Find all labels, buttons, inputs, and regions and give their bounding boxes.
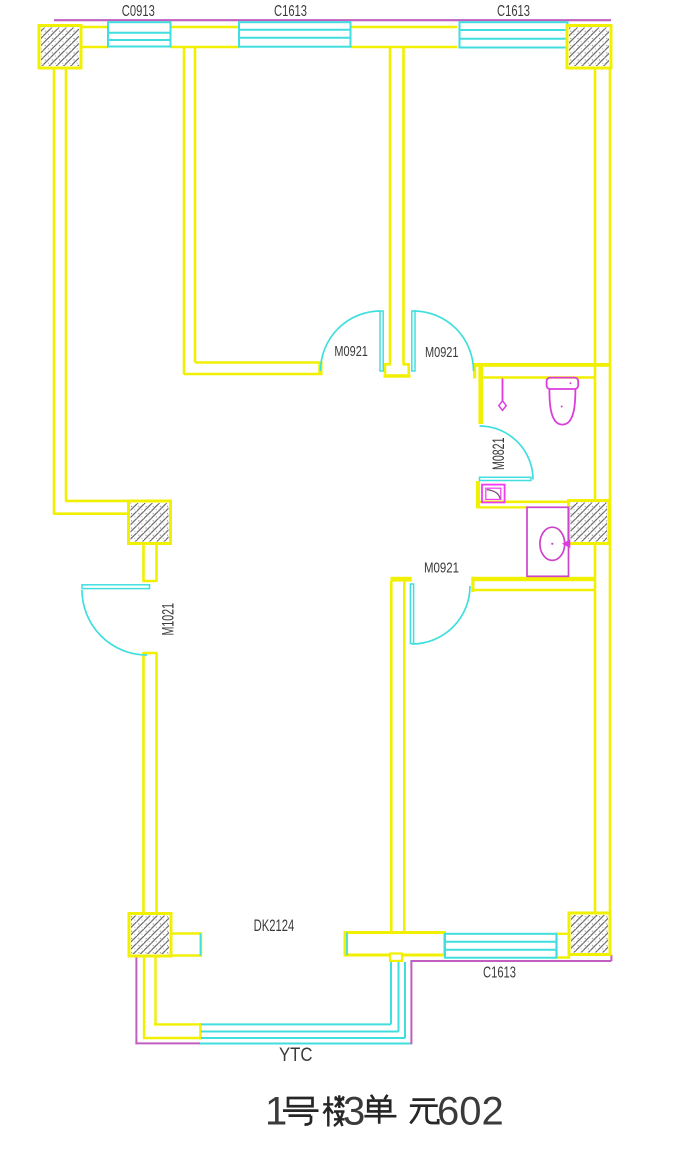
svg-text:C0913: C0913 [122,3,155,20]
svg-text:M0921: M0921 [425,344,459,361]
svg-text:M0821: M0821 [489,438,508,471]
svg-text:M1021: M1021 [159,603,178,636]
svg-text:602: 602 [437,1090,504,1134]
svg-text:DK2124: DK2124 [254,916,295,935]
svg-text:C1613: C1613 [497,3,530,20]
svg-text:C1613: C1613 [483,965,516,982]
svg-text:M0921: M0921 [424,560,459,577]
svg-text:YTC: YTC [279,1045,313,1066]
svg-text:M0921: M0921 [334,343,368,360]
svg-text:C1613: C1613 [274,3,307,20]
svg-text:3: 3 [343,1090,365,1134]
